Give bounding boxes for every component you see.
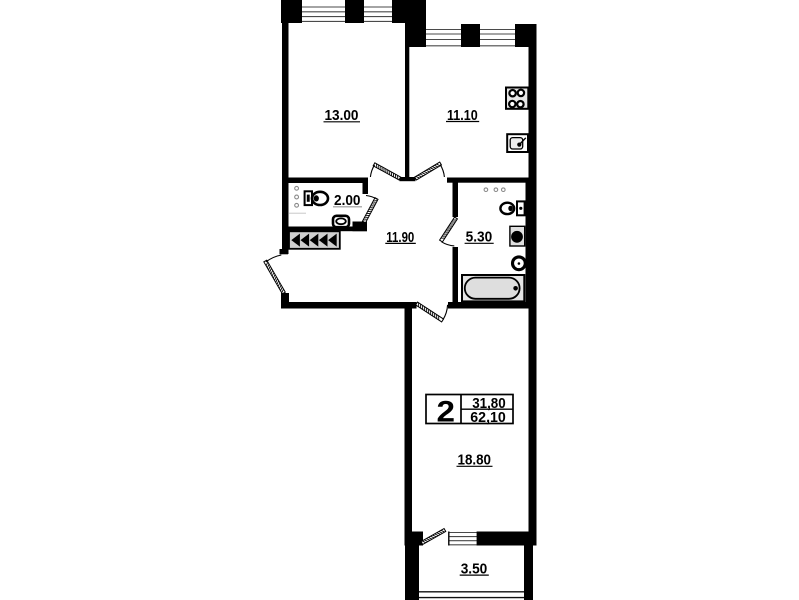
svg-text:2: 2 <box>437 396 456 429</box>
svg-text:62,10: 62,10 <box>470 409 506 426</box>
